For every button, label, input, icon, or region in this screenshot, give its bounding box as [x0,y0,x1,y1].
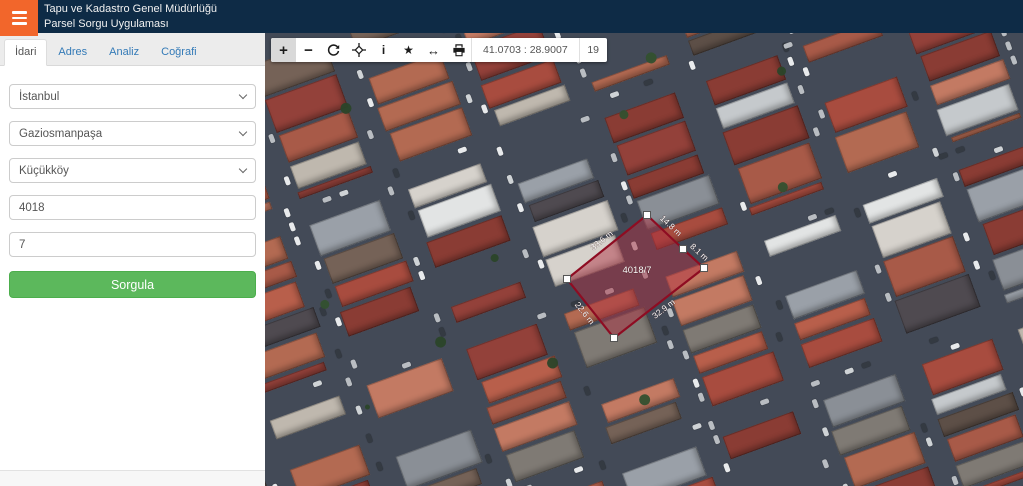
tab-bar: İdari Adres Analiz Coğrafi [0,33,265,66]
map-zoom-level[interactable]: 19 [579,38,607,62]
map-info-button[interactable]: i [371,38,396,62]
neighborhood-select[interactable]: Küçükköy [9,158,256,183]
tab-adres[interactable]: Adres [47,39,98,66]
parcel-query-app: Tapu ve Kadastro Genel Müdürlüğü Parsel … [0,0,1023,486]
map-coordinates-display: 41.0703 : 28.9007 [471,38,579,62]
header-bar: Tapu ve Kadastro Genel Müdürlüğü Parsel … [0,0,1023,33]
map-viewport[interactable]: 14.8 m8.1 m32.9 m22.6 m33.6 m4018/7 + − … [265,33,1023,486]
refresh-icon [327,44,340,57]
province-select[interactable]: İstanbul [9,84,256,109]
tab-analiz[interactable]: Analiz [98,39,150,66]
chevron-down-icon [239,128,247,136]
map-refresh-button[interactable] [321,38,346,62]
query-form: İstanbul Gaziosmanpaşa Küçükköy [0,66,265,470]
chevron-down-icon [239,91,247,99]
sidebar: İdari Adres Analiz Coğrafi İstanbul Gazi… [0,33,265,486]
tab-cografi[interactable]: Coğrafi [150,39,207,66]
parcel-label: 4018/7 [622,265,651,276]
neighborhood-select-value: Küçükköy [19,165,69,177]
hamburger-icon [12,11,27,14]
map-zoom-out-button[interactable]: − [296,38,321,62]
parcel-overlay: 14.8 m8.1 m32.9 m22.6 m33.6 m4018/7 [265,33,1023,486]
district-select-value: Gaziosmanpaşa [19,128,102,140]
chevron-down-icon [239,165,247,173]
parcel-vertex-marker [564,276,571,283]
app-title-line1: Tapu ve Kadastro Genel Müdürlüğü [44,2,217,17]
app-title-line2: Parsel Sorgu Uygulaması [44,17,217,32]
app-title: Tapu ve Kadastro Genel Müdürlüğü Parsel … [44,2,217,31]
block-number-input[interactable] [9,195,256,220]
map-toolbar: + − i ★ ↔ [271,38,607,62]
province-select-value: İstanbul [19,91,59,103]
print-icon [452,44,466,57]
parcel-number-input[interactable] [9,232,256,257]
locate-icon [352,43,366,57]
parcel-vertex-marker [701,265,708,272]
map-favorites-button[interactable]: ★ [396,38,421,62]
query-button[interactable]: Sorgula [9,271,256,298]
tab-idari[interactable]: İdari [4,39,47,66]
parcel-vertex-marker [644,212,651,219]
parcel-vertex-marker [680,246,687,253]
menu-button[interactable] [0,0,38,36]
map-zoom-in-button[interactable]: + [271,38,296,62]
sidebar-footer [0,470,265,486]
parcel-vertex-marker [611,335,618,342]
map-print-button[interactable] [446,38,471,62]
map-locate-button[interactable] [346,38,371,62]
map-measure-button[interactable]: ↔ [421,38,446,62]
district-select[interactable]: Gaziosmanpaşa [9,121,256,146]
